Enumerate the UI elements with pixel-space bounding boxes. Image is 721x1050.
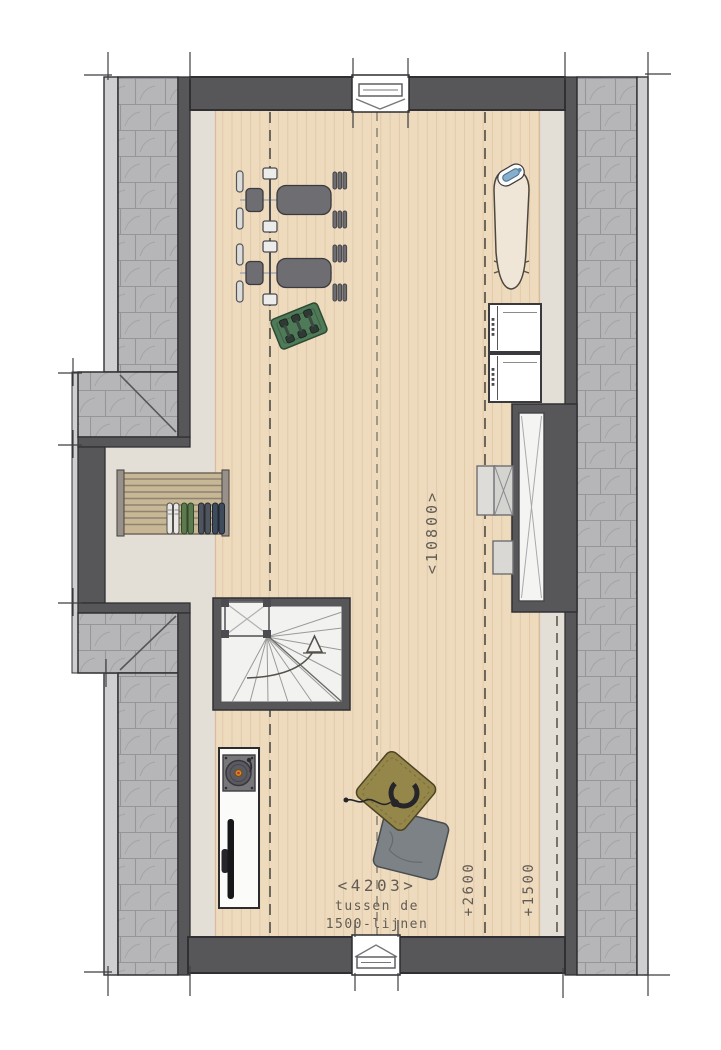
roof-window-top bbox=[352, 75, 409, 112]
dormer-roof-tiles-upper bbox=[78, 372, 178, 437]
dimension-label-width: <4203> bbox=[338, 876, 417, 895]
dimension-label-length: <10800> bbox=[423, 490, 441, 574]
staircase bbox=[213, 598, 350, 710]
level-label-1500: +1500 bbox=[521, 862, 537, 917]
left-inner-wall bbox=[178, 613, 190, 975]
bottom-wall bbox=[188, 935, 565, 975]
sideboard bbox=[219, 748, 259, 908]
width-note-line1: tussen de bbox=[335, 899, 419, 914]
dormer-roof-tiles-lower bbox=[78, 613, 178, 673]
width-note-line2: 1500-lijnen bbox=[326, 917, 429, 932]
roof-tiles bbox=[118, 673, 178, 975]
equipment-box bbox=[493, 541, 513, 574]
closet-niche bbox=[512, 404, 577, 612]
level-label-2600: +2600 bbox=[461, 862, 477, 917]
ventilation-unit bbox=[477, 466, 513, 515]
ironing-board bbox=[494, 161, 529, 289]
drying-rack bbox=[117, 470, 229, 536]
roof-window-bottom bbox=[352, 935, 400, 975]
built-in-wardrobe bbox=[519, 413, 544, 601]
record-player bbox=[223, 755, 255, 791]
left-inner-wall bbox=[178, 77, 190, 437]
floor-plan-canvas: <10800> <4203> tussen de 1500-lijnen +26… bbox=[0, 0, 721, 1050]
roof-tiles bbox=[118, 77, 178, 372]
dormer-wall-band-upper bbox=[78, 437, 190, 447]
dormer-wall-band-lower bbox=[78, 603, 190, 613]
floor-plan-page: <10800> <4203> tussen de 1500-lijnen +26… bbox=[0, 0, 721, 1050]
top-wall bbox=[190, 75, 565, 112]
dormer-side-wall bbox=[78, 447, 105, 603]
roof-tiles bbox=[577, 77, 637, 975]
stair-void bbox=[221, 599, 271, 638]
washing-machine-2 bbox=[489, 354, 541, 402]
washing-machine-1 bbox=[489, 304, 541, 352]
